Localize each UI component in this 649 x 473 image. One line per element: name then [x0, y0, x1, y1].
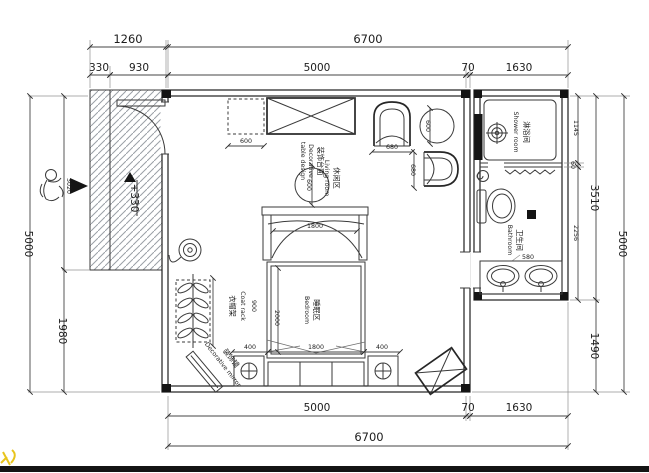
- dim-table-600-label: 600: [305, 179, 312, 191]
- dim-bottom-5000: 5000: [304, 402, 331, 414]
- dim-top-5000: 5000: [304, 62, 331, 74]
- svg-text:Bedroom: Bedroom: [303, 296, 310, 324]
- dim-left-5000: 5000: [22, 231, 34, 258]
- shower-label-en: Shower room: [512, 111, 519, 152]
- dim-top-6700: 6700: [353, 32, 382, 46]
- svg-text:休闲区: 休闲区: [332, 167, 341, 189]
- svg-text:680: 680: [409, 164, 416, 176]
- dim-bed-1800-label: 1800: [308, 344, 324, 351]
- drain-square-icon: [527, 210, 536, 219]
- person-figure: [40, 170, 63, 201]
- svg-text:Decorative: Decorative: [307, 144, 314, 178]
- svg-text:睡眠区: 睡眠区: [312, 299, 321, 321]
- bathroom-wing-walls: [473, 90, 569, 300]
- dim-top-1260: 1260: [113, 32, 142, 46]
- dim-bottom-70: 70: [461, 402, 474, 414]
- svg-text:600: 600: [240, 138, 252, 145]
- dim-right-5000: 5000: [616, 231, 628, 258]
- dim-top-70: 70: [461, 62, 474, 74]
- svg-text:table design: table design: [299, 142, 306, 180]
- dim-top-930: 930: [129, 62, 149, 74]
- dim-right-60: 60: [569, 161, 576, 169]
- dim-left-3020-label: 3020: [65, 178, 72, 194]
- dim-bottom-6700: 6700: [354, 430, 383, 444]
- dim-rack-900-label: 900: [250, 300, 257, 312]
- dim-right-3510: 3510: [588, 185, 600, 212]
- dim-vanity-580-label: 580: [522, 254, 534, 261]
- bathroom-label-zh: 卫生间: [515, 229, 524, 251]
- dim-right-1145: 1145: [572, 120, 579, 136]
- dim-right-2256: 2256: [572, 225, 579, 241]
- bottom-bar: [0, 466, 649, 472]
- svg-text:680: 680: [386, 144, 398, 151]
- svg-text:2000: 2000: [273, 310, 280, 326]
- dim-left-1980: 1980: [56, 318, 68, 345]
- dim-bed-400l-label: 400: [244, 344, 256, 351]
- dim-bed-400r-label: 400: [376, 344, 388, 351]
- bathroom-label-en: Bathroom: [506, 225, 513, 255]
- dimensions-top: 1260 6700 330 930 5000 70 1630: [89, 32, 568, 88]
- svg-text:Coat rack: Coat rack: [239, 291, 246, 321]
- porch-level-label: +330: [128, 184, 140, 213]
- watermark-fragment: [1, 450, 15, 465]
- dim-top-330: 330: [89, 62, 109, 74]
- dim-top-1630: 1630: [506, 62, 533, 74]
- dim-bottom-1630: 1630: [506, 402, 533, 414]
- dim-sidetable-600-label: 600: [424, 120, 431, 132]
- floor-plan-drawing: +330 3020 600 600 装饰台面 Decorative table …: [0, 0, 649, 473]
- decorative-table-label: 装饰台面 Decorative table design: [299, 142, 325, 180]
- dim-right-1490: 1490: [588, 333, 600, 360]
- svg-text:Living room: Living room: [323, 160, 330, 196]
- floor-plan-screenshot: +330 3020 600 600 装饰台面 Decorative table …: [0, 0, 649, 473]
- dim-canopy-1800-label: 1800: [307, 223, 323, 230]
- shower-label-zh: 淋浴间: [522, 121, 531, 143]
- svg-text:衣帽架: 衣帽架: [228, 295, 237, 317]
